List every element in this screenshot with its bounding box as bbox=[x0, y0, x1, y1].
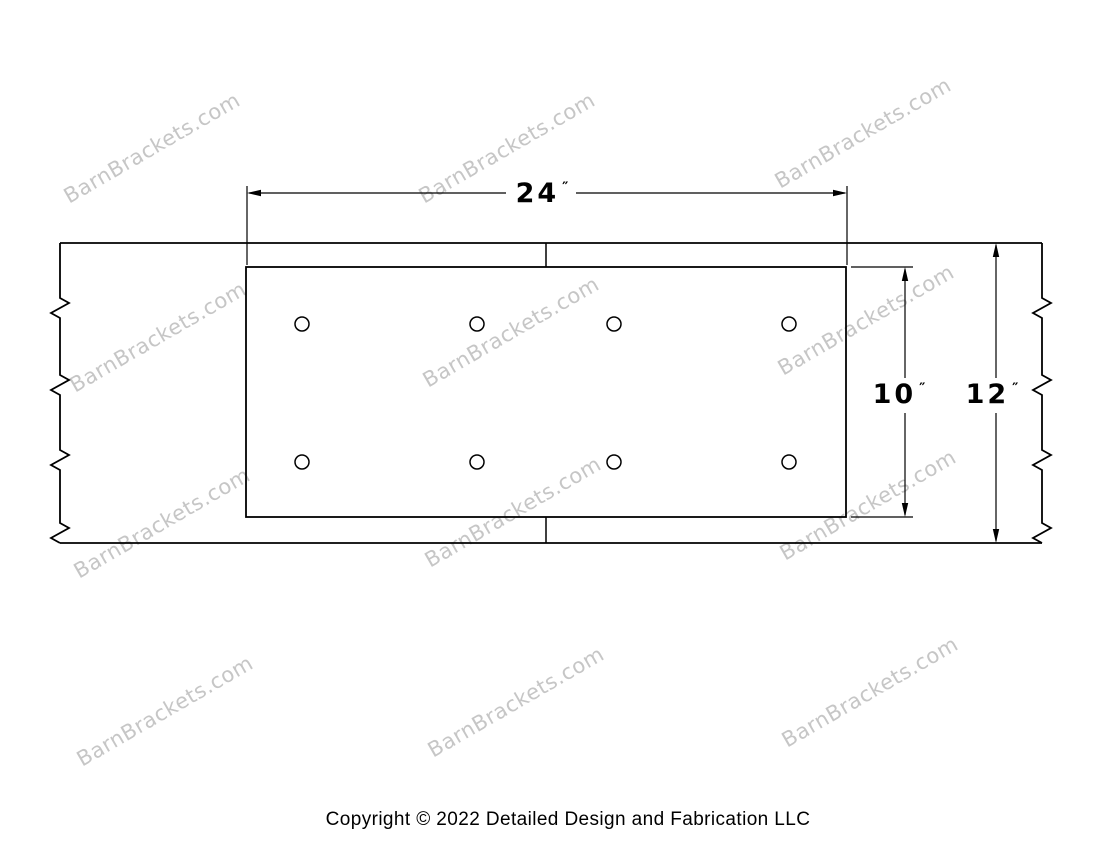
bolt-hole bbox=[607, 317, 621, 331]
width-dim-label: 24″ bbox=[516, 178, 569, 209]
beam-height-arrow-top bbox=[993, 243, 999, 257]
copyright-text: Copyright © 2022 Detailed Design and Fab… bbox=[326, 809, 811, 831]
width-arrow-right bbox=[833, 190, 847, 196]
beam-right-break-edge bbox=[1033, 243, 1051, 543]
bracket-plate bbox=[246, 267, 846, 517]
bolt-hole bbox=[607, 455, 621, 469]
bolt-holes bbox=[295, 317, 796, 469]
beam-height-arrow-bottom bbox=[993, 529, 999, 543]
bolt-hole bbox=[295, 455, 309, 469]
bolt-hole bbox=[295, 317, 309, 331]
bolt-hole bbox=[470, 455, 484, 469]
plate-height-dim-label: 10″ bbox=[873, 379, 926, 410]
bolt-hole bbox=[782, 317, 796, 331]
drawing-canvas: BarnBrackets.comBarnBrackets.comBarnBrac… bbox=[0, 0, 1100, 850]
plate-height-arrow-top bbox=[902, 267, 908, 281]
dimension-plate-height: 10″ bbox=[851, 267, 925, 517]
bolt-hole bbox=[470, 317, 484, 331]
technical-drawing: 24″ 10″ 12″ bbox=[0, 0, 1100, 850]
bolt-hole bbox=[782, 455, 796, 469]
beam-left-break-edge bbox=[51, 243, 69, 543]
dimension-beam-height: 12″ bbox=[966, 243, 1019, 543]
dimension-width: 24″ bbox=[247, 178, 847, 265]
beam-height-dim-label: 12″ bbox=[966, 379, 1019, 410]
plate-height-arrow-bottom bbox=[902, 503, 908, 517]
width-arrow-left bbox=[247, 190, 261, 196]
